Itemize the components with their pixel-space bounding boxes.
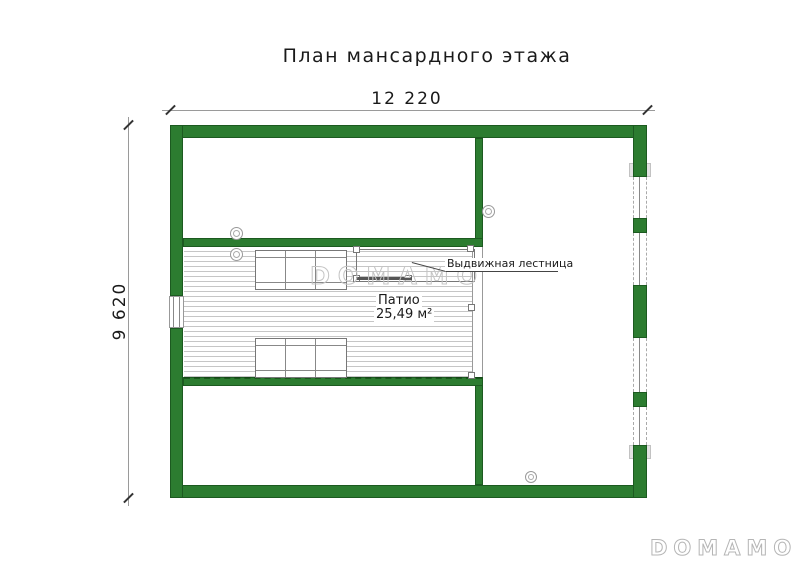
room-area-patio: 25,49 м²	[374, 308, 434, 323]
dimension-height-label: 9 620	[110, 271, 130, 351]
logo-watermark-corner: DOMAMO	[650, 536, 790, 560]
vent-circle-symbol	[525, 471, 537, 483]
wall-exterior-top	[170, 125, 647, 138]
vent-circle-symbol	[230, 227, 243, 240]
skylight-window-bottom	[255, 338, 347, 378]
wall-exterior-right-segment	[633, 218, 647, 233]
wall-interior-vertical-upper	[475, 138, 483, 247]
window-left-wall	[169, 296, 184, 328]
vent-circle-symbol	[482, 205, 495, 218]
annotation-underline	[446, 271, 558, 272]
wall-exterior-right-segment	[633, 445, 647, 498]
dimension-width-label: 12 220	[307, 89, 507, 109]
wall-exterior-right-segment	[633, 285, 647, 338]
dimension-height-line	[128, 117, 129, 506]
wall-interior-horizontal-top	[183, 238, 483, 247]
vent-circle-symbol	[230, 248, 243, 261]
window-right-wall	[633, 177, 647, 218]
dimension-width-line	[162, 110, 655, 111]
wall-exterior-bottom	[170, 485, 647, 498]
window-right-wall	[633, 407, 647, 445]
wall-exterior-right-segment	[633, 392, 647, 407]
hatch-corner-marker	[353, 246, 360, 253]
ladder-annotation: Выдвижная лестница	[445, 258, 575, 271]
page-title: План мансардного этажа	[127, 45, 727, 67]
glazing-joint-marker	[468, 304, 475, 311]
glazing-joint-marker	[468, 372, 475, 379]
window-right-wall	[633, 338, 647, 392]
wall-exterior-left-lower	[170, 328, 183, 498]
window-right-wall	[633, 233, 647, 285]
wall-exterior-left-upper	[170, 125, 183, 296]
wall-exterior-right-segment	[633, 125, 647, 177]
wall-interior-vertical-lower	[475, 378, 483, 485]
floor-plan-canvas: План мансардного этажа 12 220 9 620	[0, 0, 800, 566]
hatch-corner-marker	[467, 245, 474, 252]
